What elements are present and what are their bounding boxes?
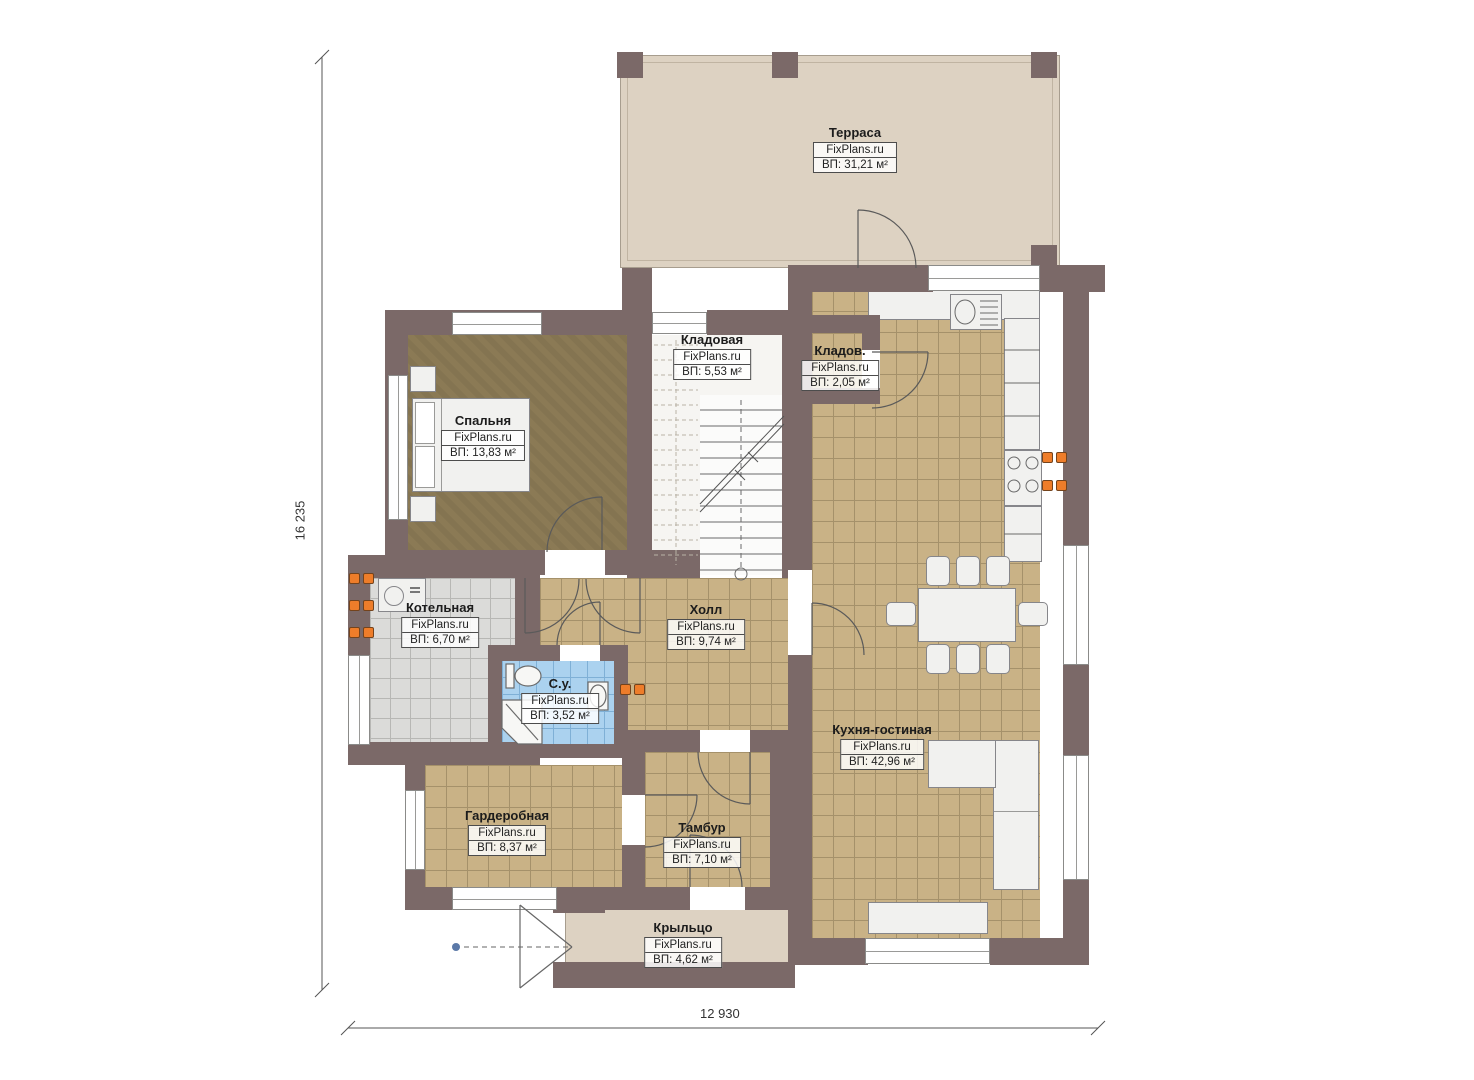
floor-plan: Терраса FixPlans.ru ВП: 31,21 м² Кладова… [0,0,1474,1080]
room-info-box: FixPlans.ru ВП: 9,74 м² [667,619,745,650]
terrace-door [858,210,916,268]
room-info-box: FixPlans.ru ВП: 42,96 м² [840,739,924,770]
vestibule-door [698,752,750,804]
watermark: FixPlans.ru [664,838,740,852]
height-dimension-label: 16 235 [292,501,307,541]
room-info-box: FixPlans.ru ВП: 4,62 м² [644,937,722,968]
room-area: ВП: 9,74 м² [668,634,744,649]
room-label-storage: Кладовая FixPlans.ru ВП: 5,53 м² [673,332,751,380]
room-name: Кухня-гостиная [832,722,932,737]
storage2-door [872,352,928,408]
door-arcs [525,210,928,887]
burner [1008,457,1020,469]
watermark: FixPlans.ru [402,618,478,632]
room-area: ВП: 31,21 м² [814,157,896,172]
watermark: FixPlans.ru [522,694,598,708]
room-info-box: FixPlans.ru ВП: 6,70 м² [401,617,479,648]
kitchen-door [812,603,864,655]
watermark: FixPlans.ru [469,826,545,840]
dimension-lines [315,50,1105,1035]
room-info-box: FixPlans.ru ВП: 5,53 м² [673,349,751,380]
watermark: FixPlans.ru [841,740,923,754]
width-dimension-label: 12 930 [700,1006,740,1021]
room-area: ВП: 3,52 м² [522,708,598,723]
room-area: ВП: 2,05 м² [802,375,878,390]
room-label-bedroom: Спальня FixPlans.ru ВП: 13,83 м² [441,413,525,461]
room-area: ВП: 4,62 м² [645,952,721,967]
bedroom-door [547,497,602,552]
room-info-box: FixPlans.ru ВП: 31,21 м² [813,142,897,173]
room-name: С.у. [521,676,599,691]
porch-entry-arrow [452,905,572,988]
room-info-box: FixPlans.ru ВП: 13,83 м² [441,430,525,461]
room-label-hall: Холл FixPlans.ru ВП: 9,74 м² [667,602,745,650]
room-name: Котельная [401,600,479,615]
room-name: Гардеробная [465,808,549,823]
boiler-door [525,578,579,633]
room-name: Кладовая [673,332,751,347]
room-area: ВП: 42,96 м² [841,754,923,769]
plan-linework [0,0,1474,1080]
watermark: FixPlans.ru [645,938,721,952]
room-info-box: FixPlans.ru ВП: 7,10 м² [663,837,741,868]
kitchen-fixture-detail [955,300,1042,534]
room-label-terrace: Терраса FixPlans.ru ВП: 31,21 м² [813,125,897,173]
room-name: Холл [667,602,745,617]
room-label-vestibule: Тамбур FixPlans.ru ВП: 7,10 м² [663,820,741,868]
sink-drainer [980,301,998,325]
toilet-tank [506,664,514,688]
room-info-box: FixPlans.ru ВП: 2,05 м² [801,360,879,391]
room-name: Тамбур [663,820,741,835]
room-info-box: FixPlans.ru ВП: 3,52 м² [521,693,599,724]
watermark: FixPlans.ru [802,361,878,375]
room-label-porch: Крыльцо FixPlans.ru ВП: 4,62 м² [644,920,722,968]
watermark: FixPlans.ru [674,350,750,364]
watermark: FixPlans.ru [668,620,744,634]
room-name: Спальня [441,413,525,428]
bathroom-door [557,602,600,645]
room-label-wardrobe: Гардеробная FixPlans.ru ВП: 8,37 м² [465,808,549,856]
room-area: ВП: 6,70 м² [402,632,478,647]
watermark: FixPlans.ru [442,431,524,445]
room-area: ВП: 8,37 м² [469,840,545,855]
room-label-kitchen: Кухня-гостиная FixPlans.ru ВП: 42,96 м² [832,722,932,770]
burner [1026,457,1038,469]
sink-bowl [955,300,975,324]
room-area: ВП: 13,83 м² [442,445,524,460]
stairs [700,400,784,580]
room-label-bathroom: С.у. FixPlans.ru ВП: 3,52 м² [521,676,599,724]
room-label-storage2: Кладов. FixPlans.ru ВП: 2,05 м² [801,343,879,391]
room-info-box: FixPlans.ru ВП: 8,37 м² [468,825,546,856]
burner [1008,480,1020,492]
room-name: Кладов. [801,343,879,358]
hall-door [586,578,640,633]
watermark: FixPlans.ru [814,143,896,157]
room-name: Крыльцо [644,920,722,935]
room-area: ВП: 7,10 м² [664,852,740,867]
room-label-boiler: Котельная FixPlans.ru ВП: 6,70 м² [401,600,479,648]
room-area: ВП: 5,53 м² [674,364,750,379]
burner [1026,480,1038,492]
room-name: Терраса [813,125,897,140]
counter-seams [1004,350,1042,534]
